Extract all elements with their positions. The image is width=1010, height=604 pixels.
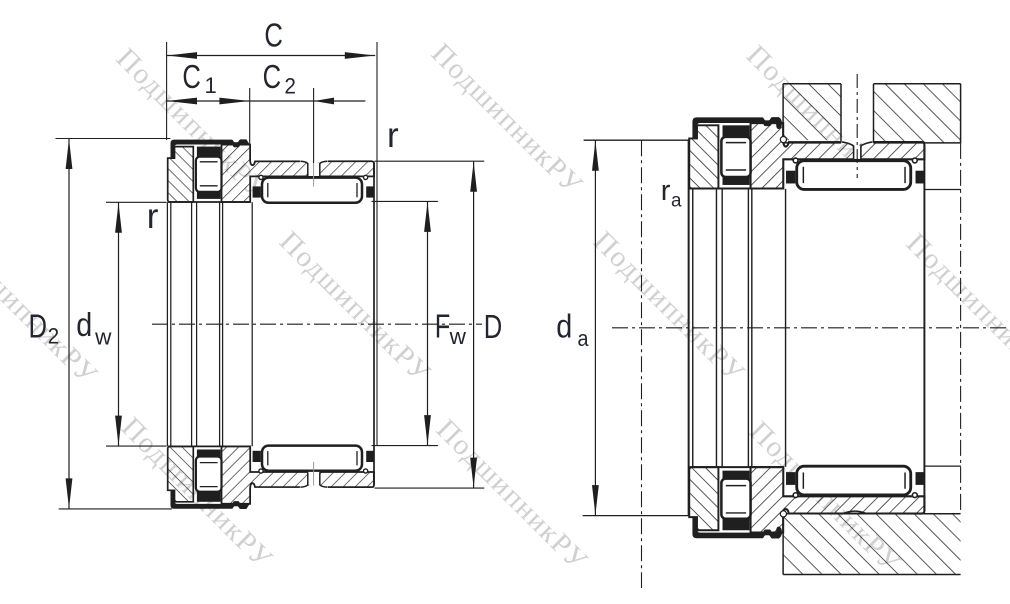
svg-text:F: F xyxy=(435,308,451,345)
svg-text:r: r xyxy=(661,175,671,207)
svg-text:d: d xyxy=(76,306,92,343)
svg-text:w: w xyxy=(94,325,111,350)
svg-text:r: r xyxy=(387,116,399,155)
svg-text:w: w xyxy=(449,324,466,349)
svg-text:C: C xyxy=(263,58,282,95)
svg-text:1: 1 xyxy=(205,73,217,98)
svg-text:C: C xyxy=(182,58,201,95)
svg-text:r: r xyxy=(147,197,159,236)
svg-text:D: D xyxy=(484,308,503,345)
svg-text:2: 2 xyxy=(285,74,296,99)
svg-text:d: d xyxy=(556,308,572,345)
svg-text:D: D xyxy=(29,308,48,345)
svg-text:a: a xyxy=(578,326,590,351)
svg-text:2: 2 xyxy=(48,324,59,349)
svg-text:C: C xyxy=(264,17,283,54)
svg-text:a: a xyxy=(671,191,682,212)
